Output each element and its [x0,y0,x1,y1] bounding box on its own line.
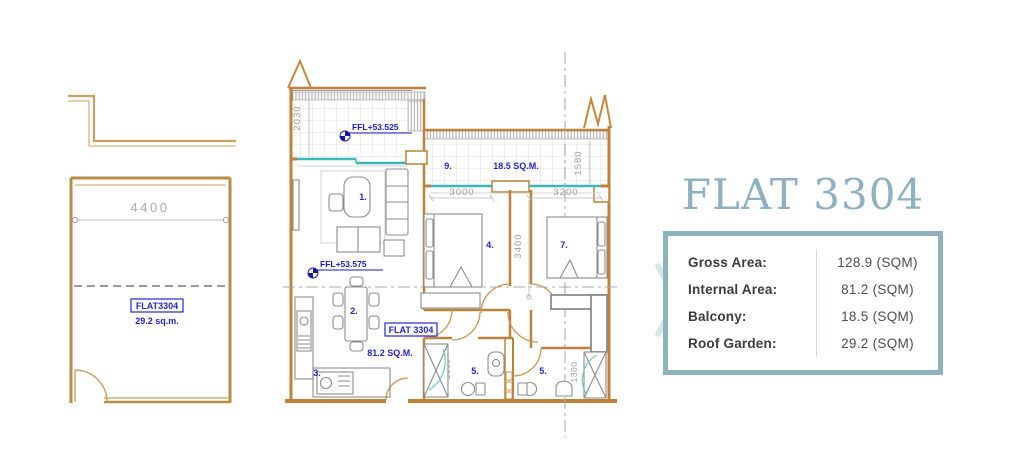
area-row-value: 29.2 (SQM) [816,330,938,357]
area-row-label: Roof Garden: [668,330,816,357]
area-row-value: 18.5 (SQM) [816,303,938,330]
area-row-label: Balcony: [668,303,816,330]
roof-garden-dimension: 4400 [72,200,228,223]
info-panel: FLAT 3304 Gross Area: 128.9 (SQM) Intern… [653,174,953,375]
area-row-label: Internal Area: [668,276,816,303]
roof-garden-label: FLAT3304 29.2 sq.m. [131,299,183,326]
area-row-label: Gross Area: [668,249,816,276]
room-label-dining: 2. [350,306,358,316]
flat-number-label: FLAT 3304 [389,325,434,335]
room-label-kitchen: 3. [313,368,321,378]
ffl-balcony-label: FFL+53.525 [352,122,399,132]
bath2-fixtures [518,352,606,398]
dim-balcony-depth: 2030 [292,105,303,130]
dim-hall-depth: 3400 [513,233,524,258]
area-table: Gross Area: 128.9 (SQM) Internal Area: 8… [663,231,943,375]
living-furniture [293,169,408,256]
flat-plan: 2030 1580 3000 3200 3200 3400 1600 1300 … [283,52,621,437]
roof-garden-door [75,370,107,402]
table-row: Roof Garden: 29.2 (SQM) [668,330,938,357]
room-label-bedroom1: 4. [486,240,494,250]
roof-garden-area-label: 29.2 sq.m. [135,316,179,326]
roof-garden-width-dim: 4400 [131,200,170,215]
room-label-bath2: 5. [539,366,547,376]
room-label-balcony: 9. [444,161,452,171]
table-row: Gross Area: 128.9 (SQM) [668,249,938,276]
dim-bedroom2-width: 3200 [553,187,578,198]
table-row: Balcony: 18.5 (SQM) [668,303,938,330]
internal-area-label: 81.2 SQ.M. [367,348,413,358]
roof-garden-walls [68,96,236,403]
area-row-value: 81.2 (SQM) [816,276,938,303]
area-row-value: 128.9 (SQM) [816,249,938,276]
bedroom2-furniture [547,217,607,352]
bath1-fixtures [424,344,504,397]
room-label-bedroom2: 7. [560,240,568,250]
table-row: Internal Area: 81.2 (SQM) [668,276,938,303]
dim-terrace-depth: 1580 [573,150,584,175]
room-label-living: 1. [359,192,367,202]
ffl-living-label: FFL+53.575 [320,259,367,269]
kitchen-fixtures [295,297,390,397]
dim-bedroom1-width: 3000 [449,187,474,198]
ffl-marker-living: FFL+53.575 [308,259,383,278]
balcony-area-label: 18.5 SQ.M. [493,161,539,171]
room-label-bath1: 5. [471,366,479,376]
floorplan-sheet: 4400 FLAT3304 29.2 sq.m. [0,0,1024,469]
panel-title: FLAT 3304 [653,174,953,216]
roof-garden-flat-label: FLAT3304 [136,301,178,311]
roof-garden-plan: 4400 FLAT3304 29.2 sq.m. [68,96,236,403]
dim-bath2-width: 1300 [569,362,579,383]
bedroom1-furniture [421,214,482,308]
